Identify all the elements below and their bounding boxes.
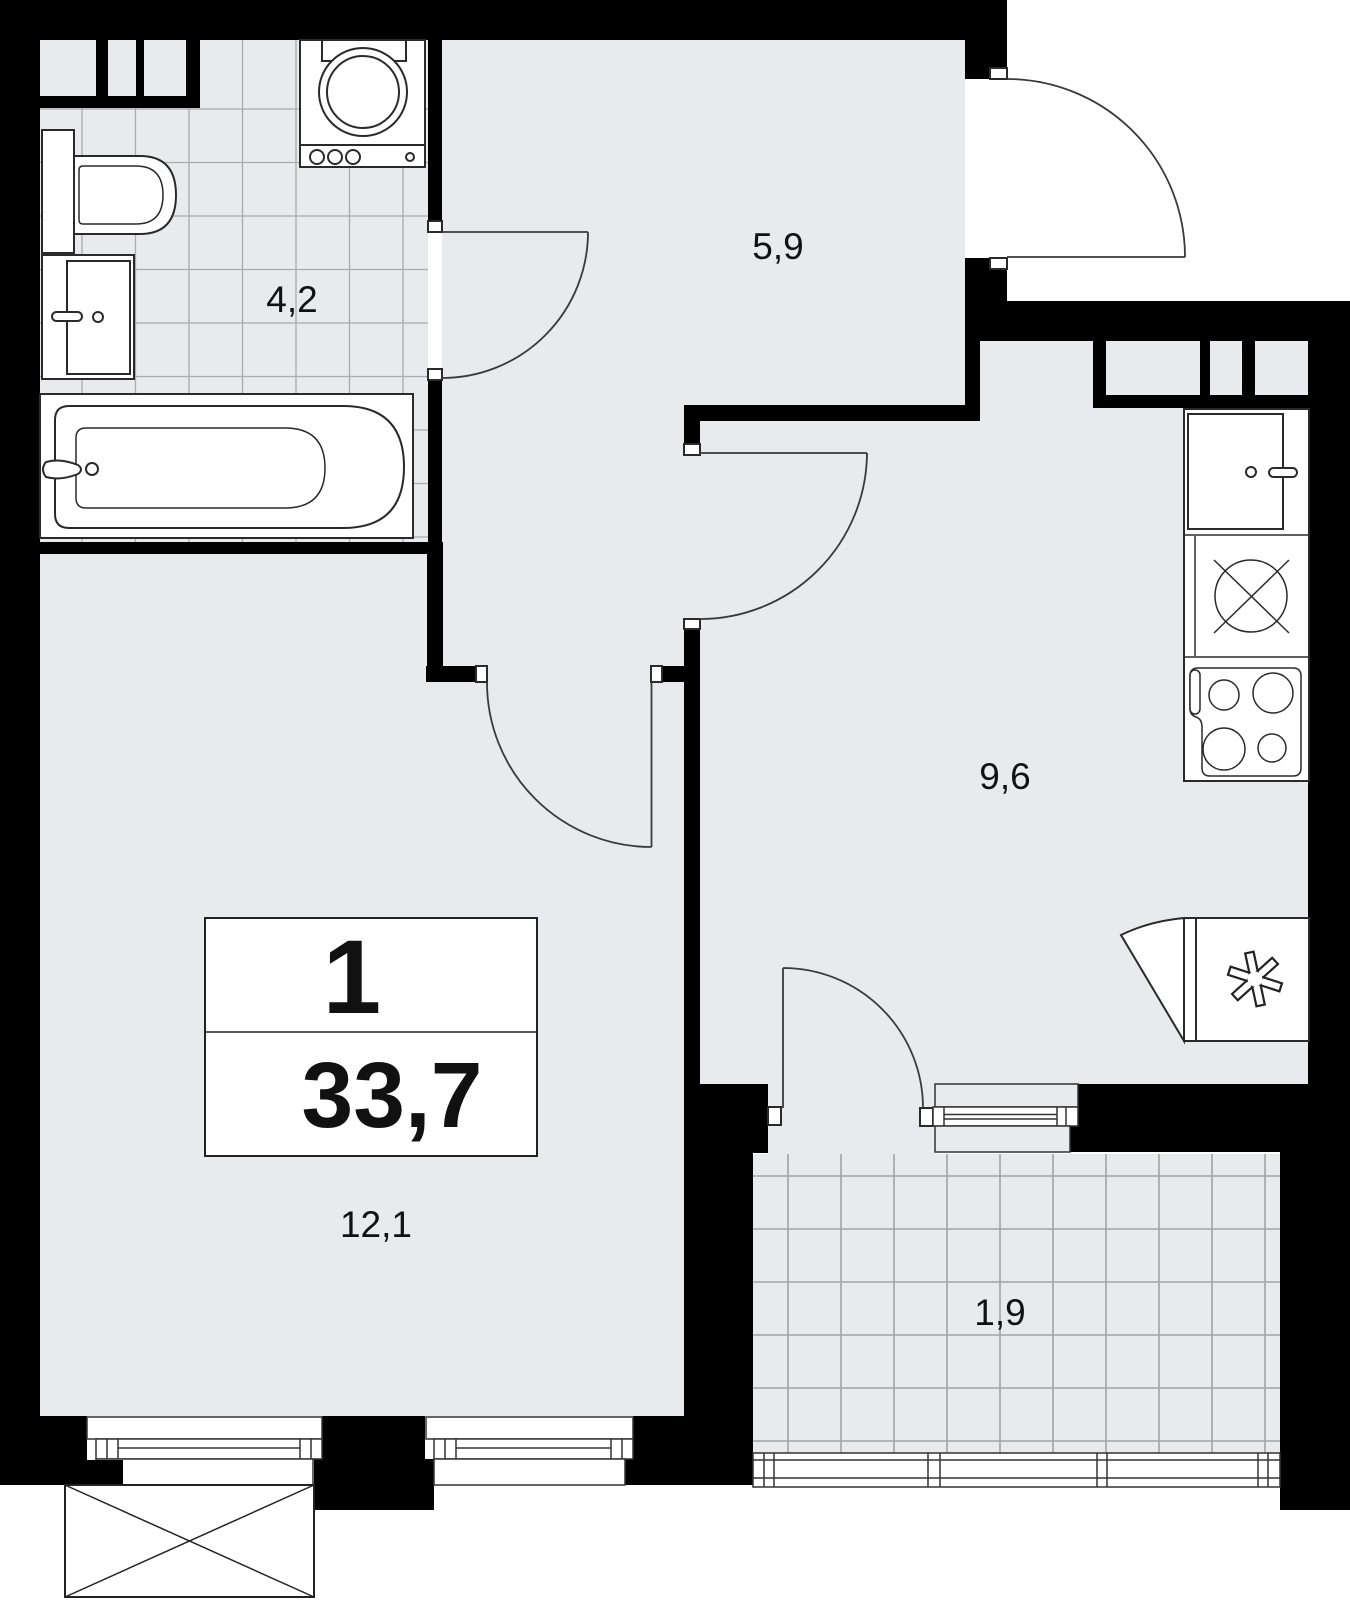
svg-text:4,2: 4,2 [266, 279, 317, 320]
svg-text:1,9: 1,9 [974, 1292, 1025, 1333]
svg-text:33,7: 33,7 [301, 1043, 482, 1147]
svg-text:1: 1 [323, 919, 381, 1036]
svg-text:12,1: 12,1 [340, 1204, 412, 1245]
svg-text:5,9: 5,9 [752, 226, 803, 267]
svg-text:9,6: 9,6 [979, 756, 1030, 797]
